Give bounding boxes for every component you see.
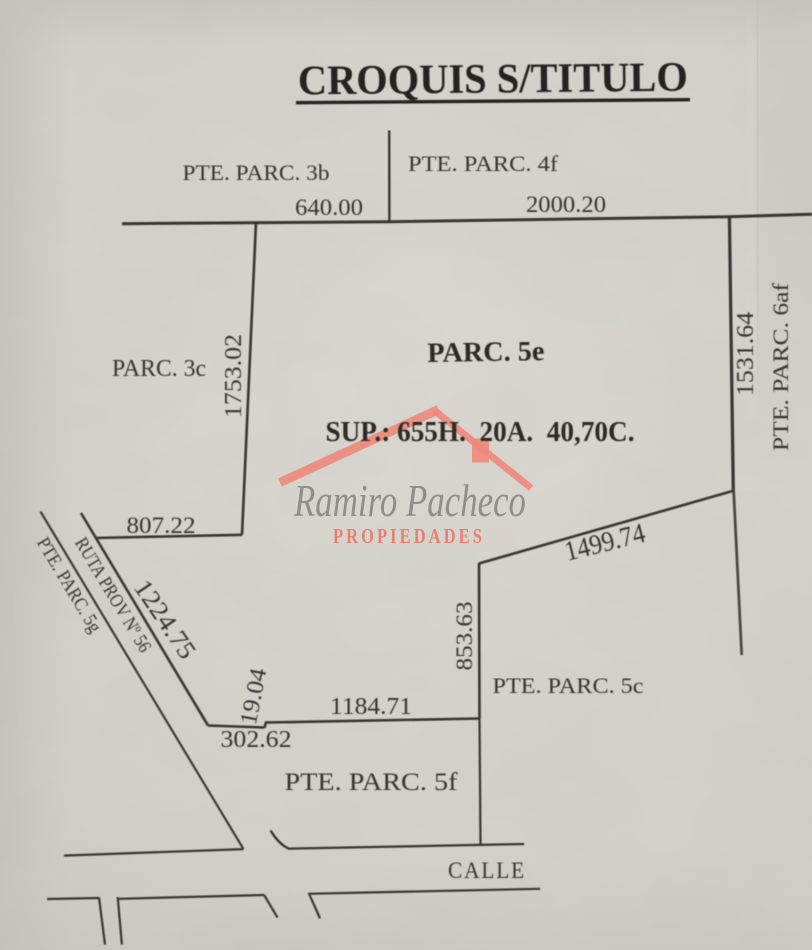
svg-text:CROQUIS S/TITULO: CROQUIS S/TITULO	[298, 55, 688, 105]
svg-text:853.63: 853.63	[452, 602, 477, 671]
svg-text:CALLE: CALLE	[448, 858, 526, 883]
svg-text:PARC. 5e: PARC. 5e	[427, 336, 545, 369]
svg-text:640.00: 640.00	[295, 195, 363, 220]
svg-text:PTE. PARC. 5f: PTE. PARC. 5f	[285, 769, 459, 796]
svg-text:PTE. PARC. 6af: PTE. PARC. 6af	[768, 282, 793, 451]
svg-text:807.22: 807.22	[127, 513, 196, 538]
svg-text:1753.02: 1753.02	[221, 334, 247, 418]
svg-text:SUP.: 655H. 20A. 40,70C.: SUP.: 655H. 20A. 40,70C.	[326, 417, 635, 448]
svg-text:PARC. 3c: PARC. 3c	[112, 356, 206, 382]
svg-text:1531.64: 1531.64	[733, 312, 759, 396]
svg-text:PTE. PARC. 5c: PTE. PARC. 5c	[493, 673, 644, 698]
svg-text:1184.71: 1184.71	[330, 694, 412, 720]
svg-text:PROPIEDADES: PROPIEDADES	[333, 524, 485, 548]
svg-text:2000.20: 2000.20	[526, 192, 606, 217]
svg-text:PTE. PARC. 3b: PTE. PARC. 3b	[183, 160, 330, 185]
svg-text:302.62: 302.62	[221, 727, 292, 753]
svg-text:Ramiro Pacheco: Ramiro Pacheco	[293, 476, 526, 526]
svg-text:PTE. PARC. 4f: PTE. PARC. 4f	[408, 151, 559, 176]
